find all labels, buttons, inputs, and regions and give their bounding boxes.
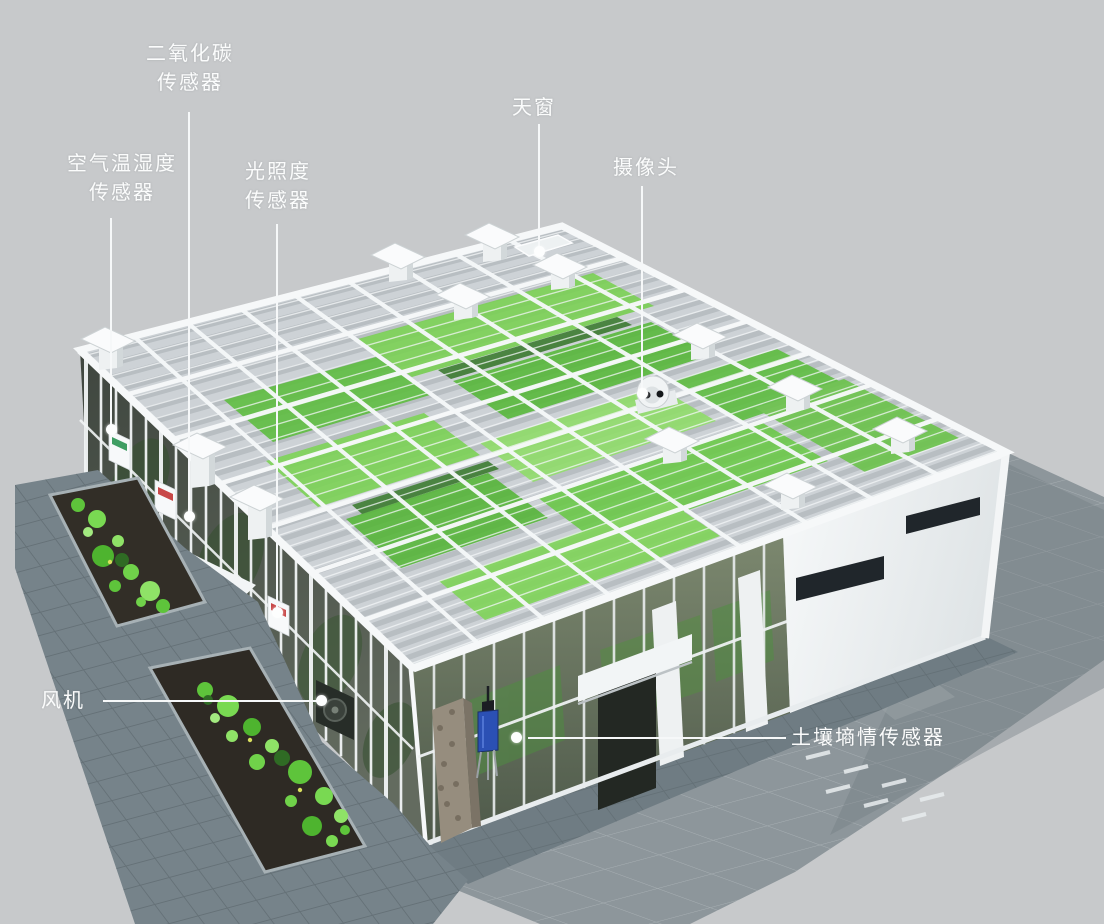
greenhouse-infographic: 二氧化碳 传感器 空气温湿度 传感器 光照度 传感器 天窗 摄像头 风机 土壤墒… — [0, 0, 1104, 924]
leader-line — [641, 186, 643, 390]
anchor-dot — [106, 424, 117, 435]
anchor-dot — [511, 732, 522, 743]
camera-label: 摄像头 — [594, 154, 698, 183]
leader-line — [276, 224, 278, 608]
skylight-label: 天窗 — [492, 94, 576, 123]
leader-line — [110, 218, 112, 425]
air-temp-humidity-sensor-label: 空气温湿度 传感器 — [48, 150, 196, 208]
anchor-dot — [316, 695, 327, 706]
greenhouse-illustration — [0, 0, 1104, 924]
fan-label: 风机 — [41, 687, 111, 716]
leader-line — [103, 700, 317, 702]
co2-sensor-label: 二氧化碳 传感器 — [120, 40, 260, 98]
anchor-dot — [184, 511, 195, 522]
light-intensity-sensor-label: 光照度 传感器 — [218, 158, 338, 216]
leader-line — [528, 737, 786, 739]
anchor-dot — [534, 246, 545, 257]
leader-line — [538, 124, 540, 248]
soil-moisture-sensor-label: 土壤墒情传感器 — [791, 724, 971, 753]
anchor-dot — [272, 607, 283, 618]
anchor-dot — [637, 388, 648, 399]
